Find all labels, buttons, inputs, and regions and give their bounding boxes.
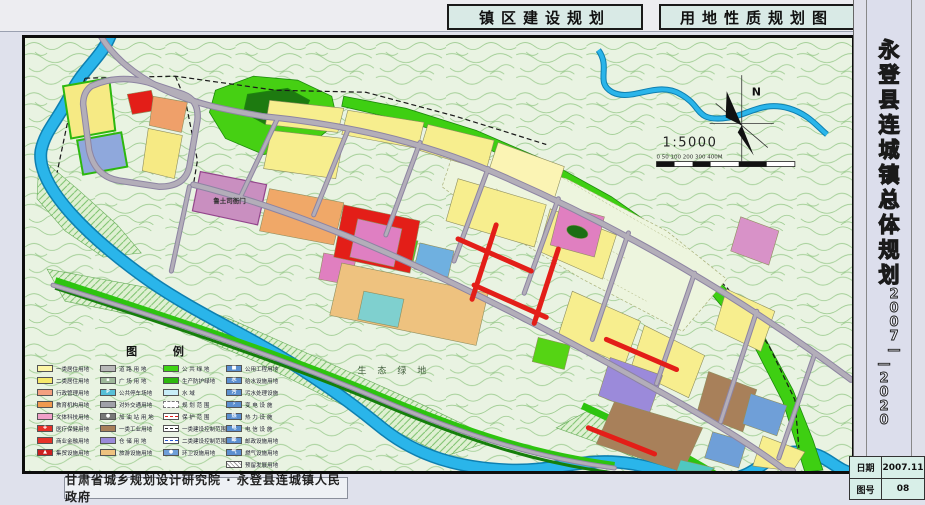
year-char: 2 [879, 372, 888, 386]
legend-item: 旅游设施用地 [100, 446, 163, 458]
drawing-info-table: 日期2007.11图号08 [849, 456, 925, 500]
legend-label: 对外交通用地 [119, 400, 152, 408]
legend-label: 文体科技用地 [56, 412, 89, 420]
legend-item: P公共停车场地 [100, 386, 163, 398]
legend-item: 邮邮政设施用地 [226, 434, 289, 446]
year-char: 0 [879, 386, 888, 400]
legend-label: 旅游设施用地 [119, 448, 152, 456]
legend-label: 规 划 范 围 [182, 400, 209, 408]
legend-item: 气燃气设施用地 [226, 446, 289, 458]
legend-label: 热 力 设 施 [245, 412, 272, 420]
legend-item: ●加 油 站 用 地 [100, 410, 163, 422]
vertical-title-char: 城 [879, 138, 900, 163]
north-label: N [752, 85, 761, 98]
legend-swatch: ■ [226, 365, 242, 372]
vertical-title-char: 规 [879, 238, 900, 263]
legend-label: 一类建设控制范围 [182, 424, 226, 432]
year-char: 0 [889, 316, 898, 330]
legend-column: ■公用工程用地水给水设施用地污污水处理设施⚡变 电 设 施热热 力 设 施电电 … [226, 362, 289, 470]
legend-swatch: ▪ [100, 377, 116, 384]
legend-item: ▲集贸设施用地 [37, 446, 100, 458]
legend-label: 广 场 用 地 [119, 376, 146, 384]
legend-item: 二类居住用地 [37, 374, 100, 386]
year-char: 2 [889, 288, 898, 302]
legend-item: 教育机构用地 [37, 398, 100, 410]
legend-swatch [163, 413, 179, 420]
legend-swatch: 气 [226, 449, 242, 456]
legend-item: 一类居住用地 [37, 362, 100, 374]
vertical-title-char: 永 [879, 38, 900, 63]
vertical-title-char: 连 [879, 113, 900, 138]
title-sidebar: 永登县连城镇总体规划2007——2020 [853, 0, 925, 456]
info-row: 图号08 [850, 478, 924, 499]
legend-label: 一类工业用地 [119, 424, 152, 432]
info-label: 图号 [850, 479, 882, 499]
legend-swatch [226, 461, 242, 468]
info-row: 日期2007.11 [850, 457, 924, 478]
legend-item: 文体科技用地 [37, 410, 100, 422]
legend-swatch: 污 [226, 389, 242, 396]
legend-swatch [37, 365, 53, 372]
legend-swatch [37, 389, 53, 396]
map-title-left-label: 镇区建设规划 [479, 7, 611, 28]
legend-label: 行政管理用地 [56, 388, 89, 396]
legend-swatch [100, 437, 116, 444]
legend-columns: 一类居住用地二类居住用地行政管理用地教育机构用地文体科技用地✚医疗保健用地商业金… [37, 362, 289, 470]
legend-label: 集贸设施用地 [56, 448, 89, 456]
legend-label: 公用工程用地 [245, 364, 278, 372]
map-title-right-label: 用地性质规划图 [680, 7, 834, 28]
legend-item: ⚡变 电 设 施 [226, 398, 289, 410]
legend-swatch [100, 401, 116, 408]
legend-swatch [37, 401, 53, 408]
legend-item: 一类建设控制范围 [163, 422, 226, 434]
map-title-left: 镇区建设规划 [447, 4, 643, 30]
scale-text: 1:5000 [663, 135, 718, 150]
legend-item: 公 共 绿 地 [163, 362, 226, 374]
legend-item: ▪广 场 用 地 [100, 374, 163, 386]
year-char: 0 [889, 302, 898, 316]
legend-item: 污污水处理设施 [226, 386, 289, 398]
credit-box: 甘肃省城乡规划设计研究院 · 永登县连城镇人民政府 [64, 477, 348, 499]
legend-panel: 图 例 一类居住用地二类居住用地行政管理用地教育机构用地文体科技用地✚医疗保健用… [37, 343, 289, 469]
legend-item: 生产防护绿地 [163, 374, 226, 386]
legend-label: 道 路 用 地 [119, 364, 146, 372]
legend-swatch [163, 437, 179, 444]
legend-label: 预留发展用地 [245, 460, 278, 468]
legend-label: 电 信 设 施 [245, 424, 272, 432]
legend-label: 教育机构用地 [56, 400, 89, 408]
legend-column: 道 路 用 地▪广 场 用 地P公共停车场地对外交通用地●加 油 站 用 地一类… [100, 362, 163, 470]
legend-label: 商业金融用地 [56, 436, 89, 444]
legend-label: 二类建设控制范围 [182, 436, 226, 444]
legend-swatch [163, 401, 179, 408]
legend-item: ■公用工程用地 [226, 362, 289, 374]
legend-label: 医疗保健用地 [56, 424, 89, 432]
legend-label: 公共停车场地 [119, 388, 152, 396]
year-char: — [888, 344, 901, 358]
legend-item: ✚医疗保健用地 [37, 422, 100, 434]
legend-item: ●环卫设施用地 [163, 446, 226, 458]
legend-swatch: P [100, 389, 116, 396]
legend-swatch: 邮 [226, 437, 242, 444]
year-char: 2 [879, 400, 888, 414]
legend-swatch [163, 389, 179, 396]
legend-label: 燃气设施用地 [245, 448, 278, 456]
vertical-title-column: 永登县连城镇总体规划2007——2020 [866, 0, 912, 456]
legend-swatch [100, 425, 116, 432]
vertical-title-char: 登 [879, 63, 900, 88]
legend-item: 水 域 [163, 386, 226, 398]
legend-swatch: ● [163, 449, 179, 456]
legend-swatch: ▲ [37, 449, 53, 456]
legend-swatch: ● [100, 413, 116, 420]
legend-title: 图 例 [37, 343, 289, 359]
legend-label: 仓 储 用 地 [119, 436, 146, 444]
legend-item: 行政管理用地 [37, 386, 100, 398]
legend-swatch: ⚡ [226, 401, 242, 408]
eco-green-label: 生 态 绿 地 [358, 365, 431, 377]
year-char: 0 [879, 414, 888, 428]
legend-swatch [37, 413, 53, 420]
legend-item: 仓 储 用 地 [100, 434, 163, 446]
legend-item: 一类工业用地 [100, 422, 163, 434]
legend-label: 保 护 范 围 [182, 412, 209, 420]
legend-label: 加 油 站 用 地 [119, 412, 154, 420]
legend-label: 一类居住用地 [56, 364, 89, 372]
legend-label: 给水设施用地 [245, 376, 278, 384]
legend-swatch [100, 449, 116, 456]
vertical-title-char: 划 [879, 263, 900, 288]
vertical-title-char: 体 [879, 213, 900, 238]
planning-map: 鲁土司衙门 生 态 绿 地 N 1:5000 0 50 100 200 300 … [22, 35, 855, 474]
legend-item: 水给水设施用地 [226, 374, 289, 386]
year-char: — [878, 358, 891, 372]
legend-swatch [37, 377, 53, 384]
legend-label: 公 共 绿 地 [182, 364, 209, 372]
info-value: 2007.11 [882, 457, 924, 478]
legend-item: 对外交通用地 [100, 398, 163, 410]
legend-swatch [163, 425, 179, 432]
legend-column: 公 共 绿 地生产防护绿地水 域规 划 范 围保 护 范 围一类建设控制范围二类… [163, 362, 226, 470]
legend-item: 道 路 用 地 [100, 362, 163, 374]
legend-item: 预留发展用地 [226, 458, 289, 470]
legend-swatch [37, 437, 53, 444]
legend-swatch: 热 [226, 413, 242, 420]
year-char: 7 [889, 330, 898, 344]
legend-column: 一类居住用地二类居住用地行政管理用地教育机构用地文体科技用地✚医疗保健用地商业金… [37, 362, 100, 470]
legend-item: 保 护 范 围 [163, 410, 226, 422]
legend-item: 商业金融用地 [37, 434, 100, 446]
legend-swatch: 水 [226, 377, 242, 384]
legend-swatch [100, 365, 116, 372]
legend-label: 二类居住用地 [56, 376, 89, 384]
vertical-title-char: 镇 [879, 163, 900, 188]
scale-bar-labels: 0 50 100 200 300 400M [657, 155, 723, 161]
legend-label: 水 域 [182, 388, 195, 396]
legend-swatch: ✚ [37, 425, 53, 432]
map-title-right: 用地性质规划图 [659, 4, 855, 30]
legend-label: 变 电 设 施 [245, 400, 272, 408]
scale-bar [657, 162, 795, 167]
legend-item: 二类建设控制范围 [163, 434, 226, 446]
legend-swatch [163, 377, 179, 384]
legend-label: 邮政设施用地 [245, 436, 278, 444]
heritage-site-label: 鲁土司衙门 [212, 196, 246, 205]
legend-item: 规 划 范 围 [163, 398, 226, 410]
legend-swatch [163, 365, 179, 372]
info-value: 08 [882, 479, 924, 499]
legend-swatch: 电 [226, 425, 242, 432]
legend-label: 环卫设施用地 [182, 448, 215, 456]
legend-label: 生产防护绿地 [182, 376, 215, 384]
legend-item: 电电 信 设 施 [226, 422, 289, 434]
info-label: 日期 [850, 457, 882, 478]
legend-label: 污水处理设施 [245, 388, 278, 396]
vertical-title-char: 县 [879, 88, 900, 113]
vertical-title-char: 总 [879, 188, 900, 213]
legend-item: 热热 力 设 施 [226, 410, 289, 422]
